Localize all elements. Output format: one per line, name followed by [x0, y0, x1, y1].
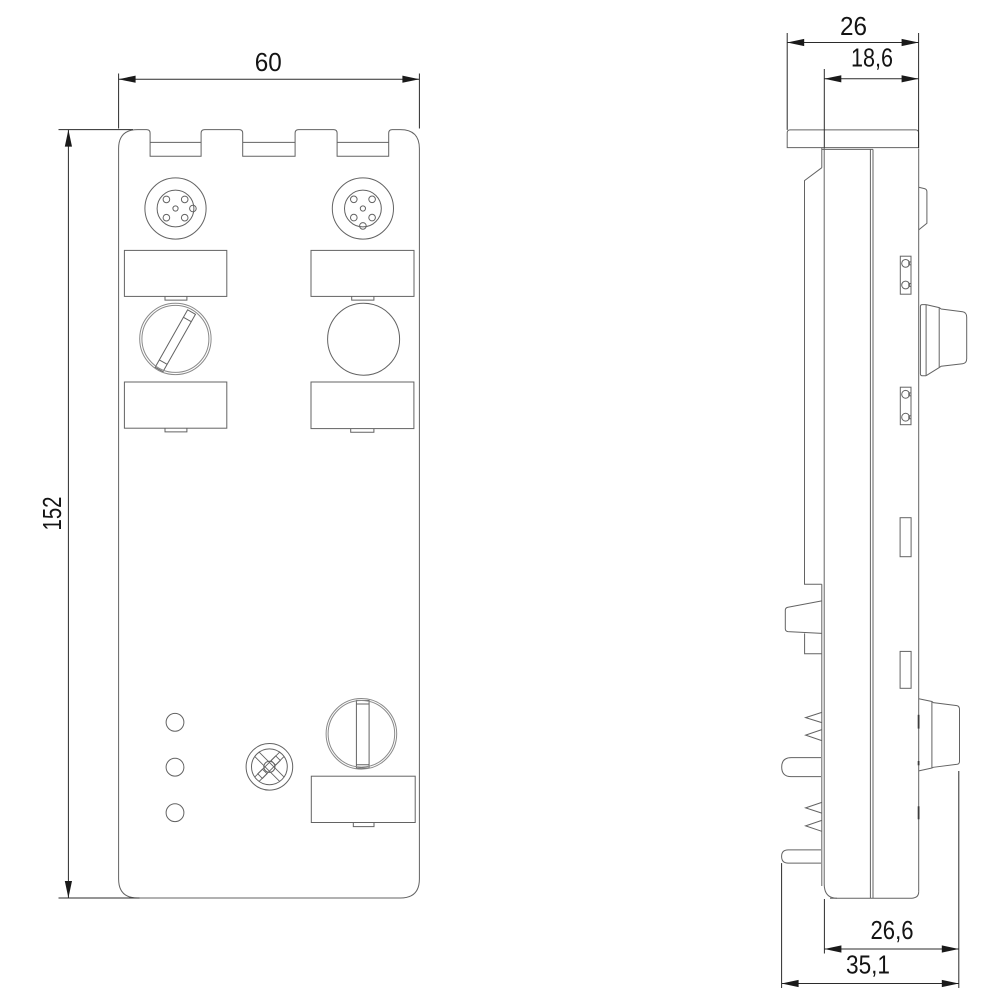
svg-text:152: 152 — [37, 497, 67, 531]
svg-text:35,1: 35,1 — [846, 950, 890, 980]
svg-text:18,6: 18,6 — [851, 43, 893, 73]
svg-text:60: 60 — [255, 47, 282, 77]
svg-text:26,6: 26,6 — [871, 915, 914, 945]
svg-text:26: 26 — [840, 11, 867, 41]
